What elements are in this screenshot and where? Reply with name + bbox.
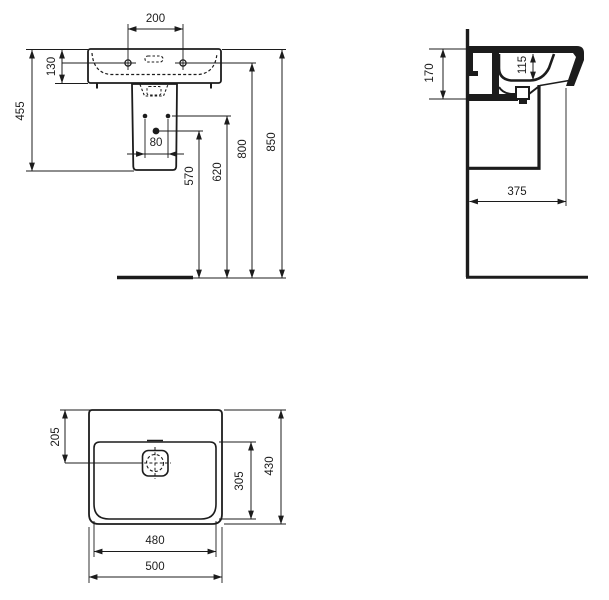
dim-basin-height: 130 xyxy=(26,50,88,84)
dim-570-label: 570 xyxy=(184,166,196,185)
dim-height-to-pedestal-bottom: 455 xyxy=(15,50,134,171)
pedestal-outline xyxy=(132,84,177,170)
dim-480-label: 480 xyxy=(145,535,164,547)
dim-section-height: 170 xyxy=(424,49,466,99)
basin-plan-outline xyxy=(89,410,222,524)
dim-500-label: 500 xyxy=(145,561,164,573)
wall-bracket xyxy=(467,53,473,73)
fixing-hole-right-dot xyxy=(166,114,171,119)
dim-bowl-inner-depth-side: 115 xyxy=(517,54,533,80)
dim-drain-center-offset: 205 xyxy=(50,410,143,463)
basin-section-bottom-shelf xyxy=(466,94,518,101)
basin-front-outline xyxy=(88,49,221,83)
dim-fixing-hole-height: 620 xyxy=(172,116,231,278)
dim-205-label: 205 xyxy=(50,427,62,446)
dim-tap-hole-spacing: 200 xyxy=(128,13,183,70)
side-view: 170 115 375 xyxy=(424,29,588,277)
dim-115-label: 115 xyxy=(517,56,529,74)
dim-200-label: 200 xyxy=(146,13,165,25)
trap-drain-box xyxy=(516,87,529,99)
dim-rim-height: 850 xyxy=(222,50,286,279)
trap-drain-stub xyxy=(519,99,527,104)
fixing-hole-left-dot xyxy=(143,114,148,119)
dim-800-label: 800 xyxy=(237,139,249,158)
drain-outlet-dot xyxy=(153,128,160,135)
dim-305-label: 305 xyxy=(234,471,246,490)
dim-overall-depth: 375 xyxy=(470,88,567,206)
dim-430-label: 430 xyxy=(264,456,276,475)
drawing-sheet: 200 130 455 80 570 xyxy=(0,0,609,600)
dim-455-label: 455 xyxy=(15,101,27,120)
dim-80-label: 80 xyxy=(150,137,163,149)
overflow-slot-dashed xyxy=(145,56,163,62)
dim-bowl-inner-depth-plan: 305 xyxy=(219,442,256,519)
wall-bracket-foot xyxy=(467,71,478,76)
dim-130-label: 130 xyxy=(46,57,58,76)
plan-view: 205 305 430 480 500 xyxy=(50,410,286,583)
front-view: 200 130 455 80 570 xyxy=(15,13,286,278)
dim-170-label: 170 xyxy=(424,63,436,82)
dim-375-label: 375 xyxy=(507,186,526,198)
dim-620-label: 620 xyxy=(212,162,224,181)
dim-inner-width: 480 xyxy=(94,521,216,557)
dim-overall-depth-plan: 430 xyxy=(224,410,286,524)
technical-drawing: 200 130 455 80 570 xyxy=(0,0,609,600)
dim-850-label: 850 xyxy=(266,132,278,151)
